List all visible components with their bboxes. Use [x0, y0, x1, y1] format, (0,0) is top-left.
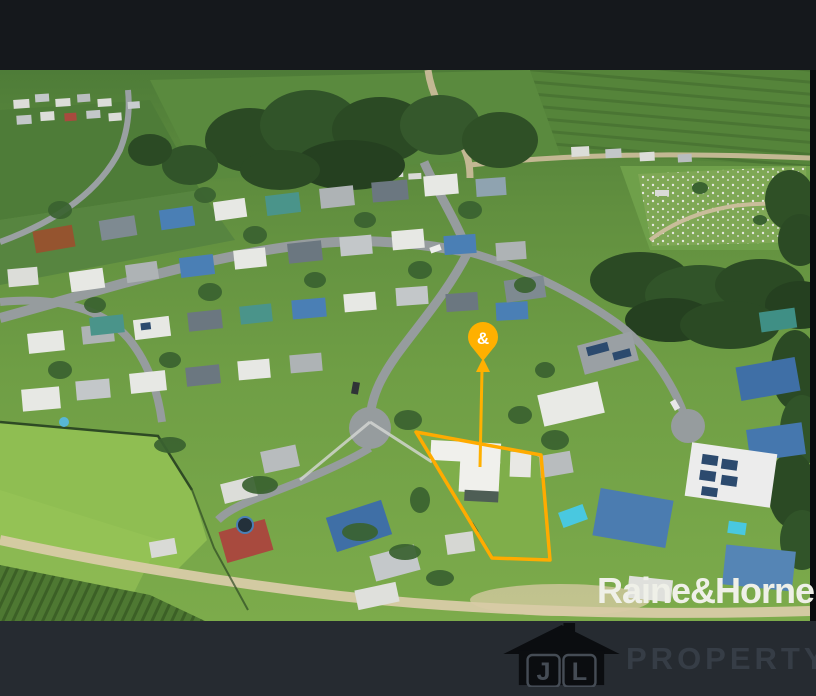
agent-initial-left: J [537, 658, 551, 686]
agency-watermark: Raine&Horne® [597, 570, 816, 612]
aerial-photo: & [0, 70, 810, 621]
agent-brand-bar: J L PROPERTY [0, 621, 816, 696]
screenshot-root: & Raine&Horne® J L PROPERTY [0, 0, 816, 696]
agency-name: Raine&Horne [597, 570, 814, 611]
letterbox-top-bar [0, 0, 816, 70]
agent-initial-right: L [572, 658, 587, 686]
pin-leader-line [480, 370, 482, 467]
house-icon: J L [503, 623, 620, 687]
letterbox-right-strip [810, 70, 816, 621]
pin-label: & [477, 329, 489, 348]
agent-wordmark: PROPERTY [626, 641, 816, 677]
